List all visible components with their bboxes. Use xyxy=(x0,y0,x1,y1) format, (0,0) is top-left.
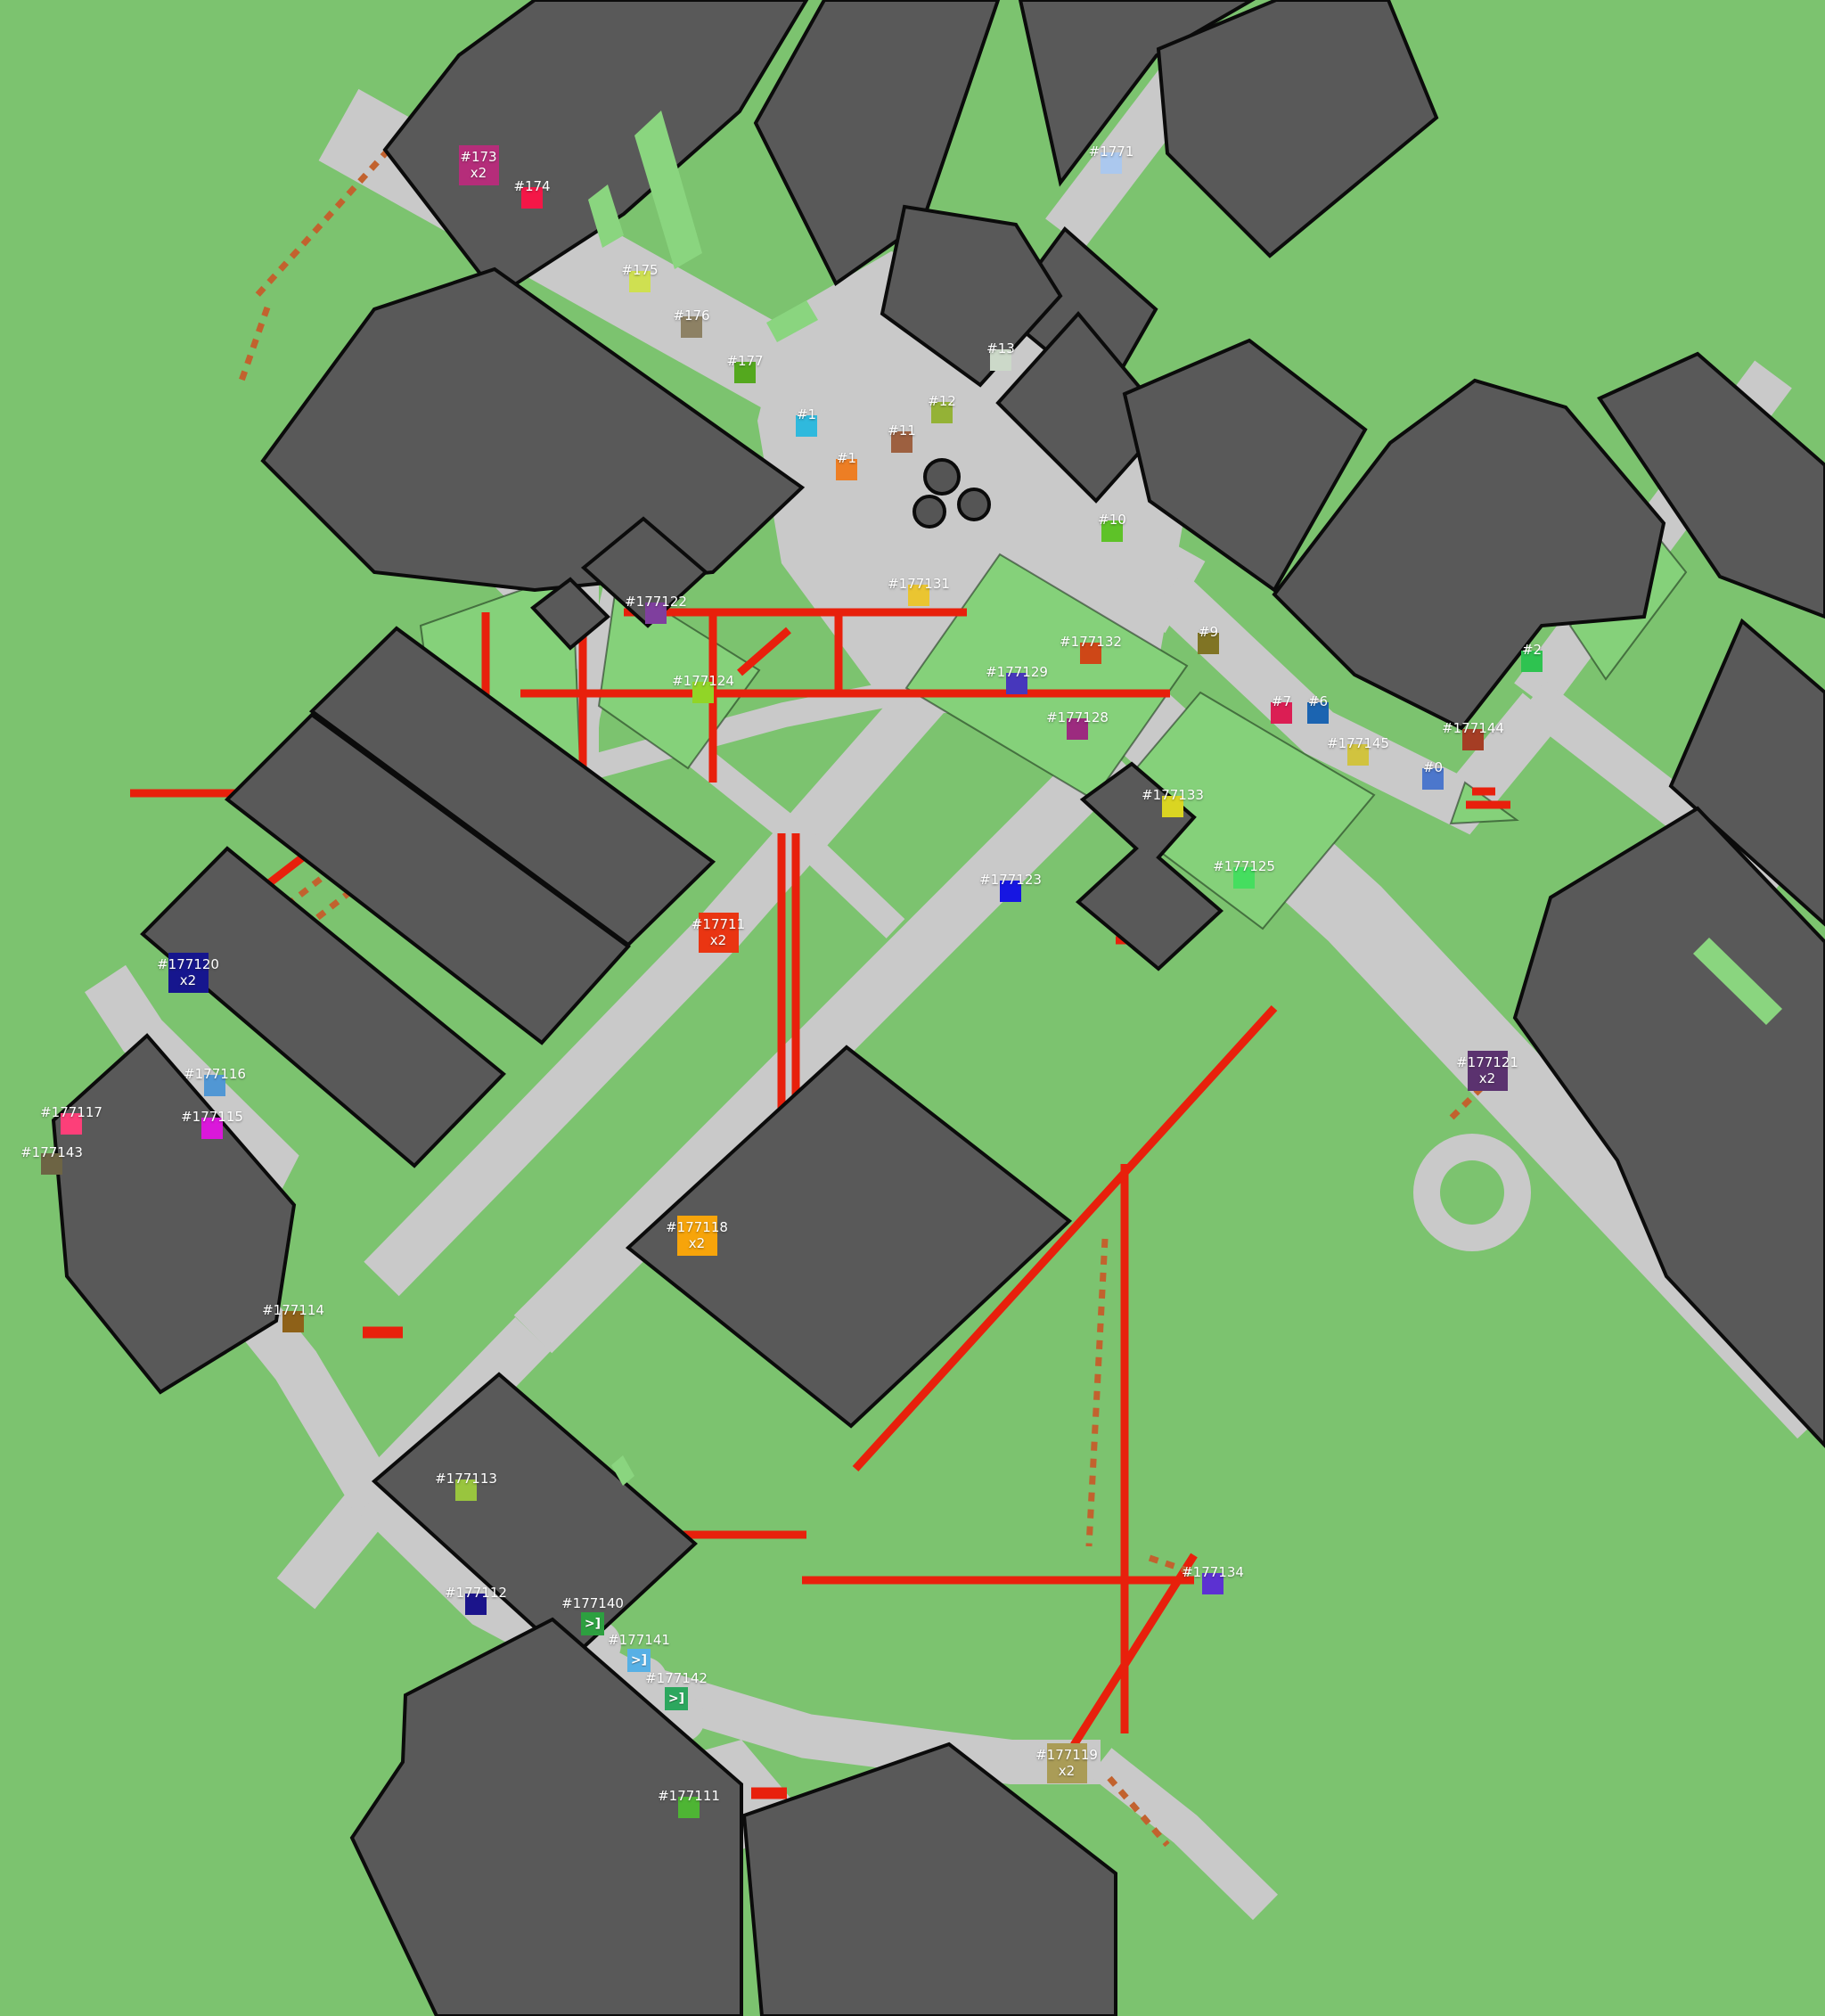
marker-label: #177121x2 xyxy=(1468,1051,1508,1091)
marker-label: #9 xyxy=(1199,625,1218,640)
map-marker-177115-33[interactable]: #177115 xyxy=(201,1118,223,1139)
marker-label: #2 xyxy=(1522,643,1542,658)
map-marker-177133-25[interactable]: #177133 xyxy=(1162,796,1183,817)
map-marker-177117-32[interactable]: #177117 xyxy=(61,1113,82,1135)
marker-label: #177111 xyxy=(658,1789,720,1804)
map-marker-177144-22[interactable]: #177144 xyxy=(1462,729,1484,750)
map-marker-177111-44[interactable]: #177111 xyxy=(678,1797,700,1818)
marker-label: #1 xyxy=(797,407,816,422)
marker-label: #173x2 xyxy=(459,145,499,185)
marker-label: #0 xyxy=(1423,760,1443,775)
marker-label: #6 xyxy=(1308,694,1328,709)
map-marker-1771-5[interactable]: #1771 xyxy=(1101,152,1122,174)
marker-label: #1 xyxy=(837,451,856,466)
marker-label: #177 xyxy=(726,354,763,369)
marker-label: #177117 xyxy=(40,1105,102,1120)
map-marker-177120-29[interactable]: #177120x2 xyxy=(168,953,209,993)
map-marker-177128-17[interactable]: #177128 xyxy=(1067,718,1088,740)
marker-label: #7 xyxy=(1272,694,1291,709)
map-canvas: #173x2#174#175#176#177#1771#1#11#12#13#1… xyxy=(0,0,1825,2016)
map-marker-177116-31[interactable]: #177116 xyxy=(204,1075,225,1096)
marker-label: #177124 xyxy=(672,674,734,689)
dock-arrow-icon: >] xyxy=(665,1687,688,1710)
map-marker-177119-43[interactable]: #177119x2 xyxy=(1047,1743,1087,1783)
marker-label: #177123 xyxy=(979,873,1042,888)
marker-label: #177142 xyxy=(645,1671,708,1686)
map-marker-177141-40[interactable]: #177141>] xyxy=(627,1649,651,1672)
map-marker-12-8[interactable]: #12 xyxy=(931,402,953,423)
map-marker-177121-30[interactable]: #177121x2 xyxy=(1468,1051,1508,1091)
marker-label: #177140 xyxy=(561,1596,624,1611)
map-marker-177131-12[interactable]: #177131 xyxy=(908,585,929,606)
map-marker-177124-14[interactable]: #177124 xyxy=(692,682,714,703)
map-marker-1-6[interactable]: #1 xyxy=(796,415,817,437)
map-marker-177143-34[interactable]: #177143 xyxy=(41,1153,62,1175)
marker-label: #177119x2 xyxy=(1047,1743,1087,1783)
marker-label: #177141 xyxy=(608,1633,670,1648)
map-marker-0-24[interactable]: #0 xyxy=(1422,768,1444,790)
marker-label: #176 xyxy=(673,308,709,324)
map-marker-177112-38[interactable]: #177112 xyxy=(465,1594,487,1615)
map-marker-6-20[interactable]: #6 xyxy=(1307,702,1329,724)
map-marker-177125-26[interactable]: #177125 xyxy=(1233,867,1255,889)
marker-label: #177122 xyxy=(625,594,687,610)
marker-label: #177118x2 xyxy=(677,1216,717,1256)
marker-label: #10 xyxy=(1098,512,1126,528)
map-marker-177140-39[interactable]: #177140>] xyxy=(581,1612,604,1635)
marker-label: #12 xyxy=(928,394,956,409)
marker-label: #177113 xyxy=(435,1471,497,1487)
map-marker-9-18[interactable]: #9 xyxy=(1198,633,1219,654)
map-marker-174-1[interactable]: #174 xyxy=(521,187,543,209)
map-marker-17711-28[interactable]: #17711x2 xyxy=(699,913,739,953)
map-marker-177145-23[interactable]: #177145 xyxy=(1347,744,1369,766)
map-marker-7-19[interactable]: #7 xyxy=(1271,702,1292,724)
dock-arrow-icon: >] xyxy=(581,1612,604,1635)
map-marker-177122-13[interactable]: #177122 xyxy=(645,602,667,624)
map-marker-177129-16[interactable]: #177129 xyxy=(1006,673,1027,694)
map-marker-177132-15[interactable]: #177132 xyxy=(1080,643,1101,664)
marker-label: #17711x2 xyxy=(699,913,739,953)
markers-layer: #173x2#174#175#176#177#1771#1#11#12#13#1… xyxy=(0,0,1825,2016)
marker-label: #175 xyxy=(621,263,658,278)
marker-label: #177114 xyxy=(262,1303,324,1318)
dock-arrow-icon: >] xyxy=(627,1649,651,1672)
marker-label: #1771 xyxy=(1089,144,1134,160)
marker-label: #177133 xyxy=(1142,788,1204,803)
marker-label: #13 xyxy=(986,341,1015,356)
marker-label: #177129 xyxy=(986,665,1048,680)
map-marker-177118-35[interactable]: #177118x2 xyxy=(677,1216,717,1256)
map-marker-2-21[interactable]: #2 xyxy=(1521,651,1543,672)
marker-label: #177145 xyxy=(1327,736,1389,751)
marker-label: #177120x2 xyxy=(168,953,209,993)
map-marker-10-11[interactable]: #10 xyxy=(1101,520,1123,542)
map-marker-177-4[interactable]: #177 xyxy=(734,362,756,383)
marker-label: #177116 xyxy=(184,1067,246,1082)
map-marker-13-9[interactable]: #13 xyxy=(990,349,1011,371)
marker-label: #177144 xyxy=(1442,721,1504,736)
marker-label: #11 xyxy=(888,423,916,438)
marker-label: #177125 xyxy=(1213,859,1275,874)
map-marker-177113-37[interactable]: #177113 xyxy=(455,1479,477,1501)
marker-label: #177115 xyxy=(181,1110,243,1125)
map-marker-177142-41[interactable]: #177142>] xyxy=(665,1687,688,1710)
map-marker-175-2[interactable]: #175 xyxy=(629,271,651,292)
marker-label: #177128 xyxy=(1046,710,1109,725)
map-marker-176-3[interactable]: #176 xyxy=(681,316,702,338)
map-marker-1-10[interactable]: #1 xyxy=(836,459,857,480)
marker-label: #174 xyxy=(513,179,550,194)
map-marker-177114-36[interactable]: #177114 xyxy=(282,1311,304,1332)
map-marker-177134-42[interactable]: #177134 xyxy=(1202,1573,1223,1594)
map-marker-11-7[interactable]: #11 xyxy=(891,431,912,453)
marker-label: #177131 xyxy=(888,577,950,592)
marker-label: #177112 xyxy=(445,1586,507,1601)
map-marker-173-0[interactable]: #173x2 xyxy=(459,145,499,185)
marker-label: #177134 xyxy=(1182,1565,1244,1580)
marker-label: #177132 xyxy=(1060,635,1122,650)
marker-label: #177143 xyxy=(20,1145,83,1160)
map-marker-177123-27[interactable]: #177123 xyxy=(1000,881,1021,902)
